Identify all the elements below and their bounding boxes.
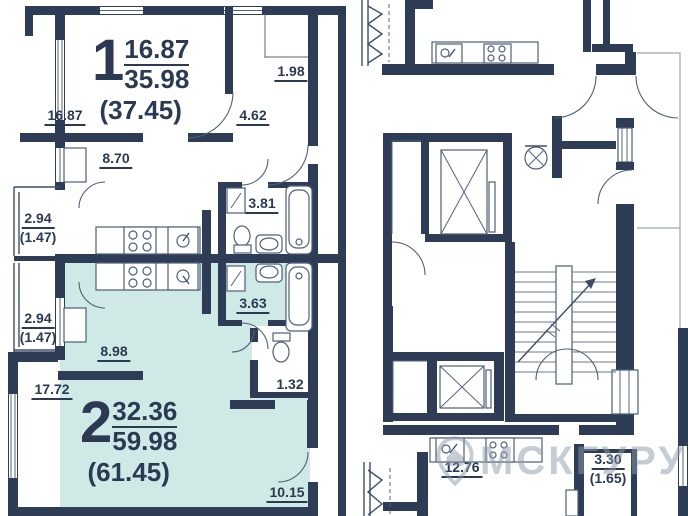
room-label-apt1-kitchen: 8.70: [99, 151, 132, 169]
apartment1-total-area: (37.45): [92, 95, 189, 126]
apartment1-floor-area: 35.98: [124, 66, 189, 93]
room-label-apt1-balcony: 2.94 (1.47): [20, 211, 57, 244]
apartment1-summary: 1 16.87 35.98 (37.45): [92, 36, 189, 126]
room-label-apt1-bathroom: 3.81: [245, 196, 278, 214]
room-label-apt2-living: 17.72: [31, 382, 72, 400]
apartment1-number: 1: [92, 36, 122, 86]
apartment1-living-area: 16.87: [124, 36, 189, 66]
room-label-apt2-hall: 10.15: [266, 485, 307, 503]
apartment2-living-area: 32.36: [112, 398, 177, 428]
room-label-apt1-hall: 4.62: [236, 108, 269, 126]
ventilation-symbol: [525, 146, 547, 169]
elevator-cars: [440, 150, 495, 408]
floor-plan-page: 1 16.87 35.98 (37.45) 2 32.36 59.98 (61.…: [0, 0, 688, 516]
apartment2-floor-area: 59.98: [112, 428, 177, 455]
room-label-apt2-kitchen: 8.98: [97, 344, 130, 362]
apartment2-number: 2: [80, 398, 110, 448]
room-label-apt1-living: 16.87: [44, 108, 85, 126]
staircase: [515, 266, 616, 384]
apartment2-summary: 2 32.36 59.98 (61.45): [80, 398, 177, 488]
room-label-neighbor-balcony: 3.30 (1.65): [590, 452, 627, 485]
room-label-apt2-balcony: 2.94 (1.47): [20, 311, 57, 344]
room-label-apt1-closet: 1.98: [274, 64, 307, 82]
room-label-neighbor-kitchen: 12.76: [441, 460, 482, 478]
room-label-apt2-wc: 1.32: [273, 377, 306, 395]
room-label-apt2-bathroom: 3.63: [236, 296, 269, 314]
doors-right-block: [392, 76, 678, 275]
apartment2-total-area: (61.45): [80, 457, 177, 488]
